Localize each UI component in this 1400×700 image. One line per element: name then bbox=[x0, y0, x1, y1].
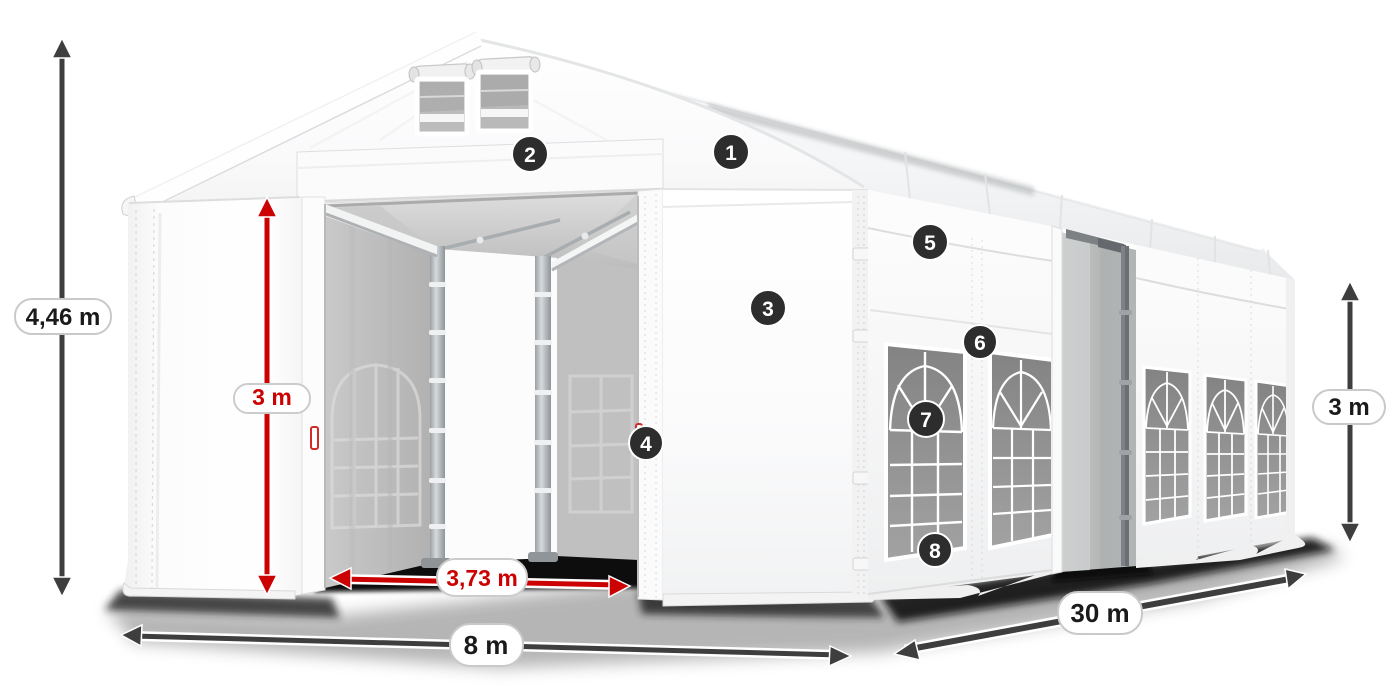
svg-text:3,73 m: 3,73 m bbox=[446, 565, 518, 591]
svg-text:3: 3 bbox=[762, 298, 774, 321]
svg-text:8 m: 8 m bbox=[464, 630, 509, 660]
svg-text:2: 2 bbox=[524, 144, 536, 167]
svg-text:1: 1 bbox=[725, 142, 737, 165]
svg-text:5: 5 bbox=[924, 232, 936, 255]
svg-text:4: 4 bbox=[640, 433, 652, 456]
svg-text:7: 7 bbox=[920, 409, 932, 432]
svg-text:4,46 m: 4,46 m bbox=[26, 304, 101, 331]
svg-text:3 m: 3 m bbox=[1328, 394, 1369, 421]
svg-text:30 m: 30 m bbox=[1070, 598, 1129, 628]
svg-text:8: 8 bbox=[929, 540, 941, 563]
svg-text:6: 6 bbox=[974, 332, 986, 355]
svg-text:3 m: 3 m bbox=[252, 384, 292, 410]
